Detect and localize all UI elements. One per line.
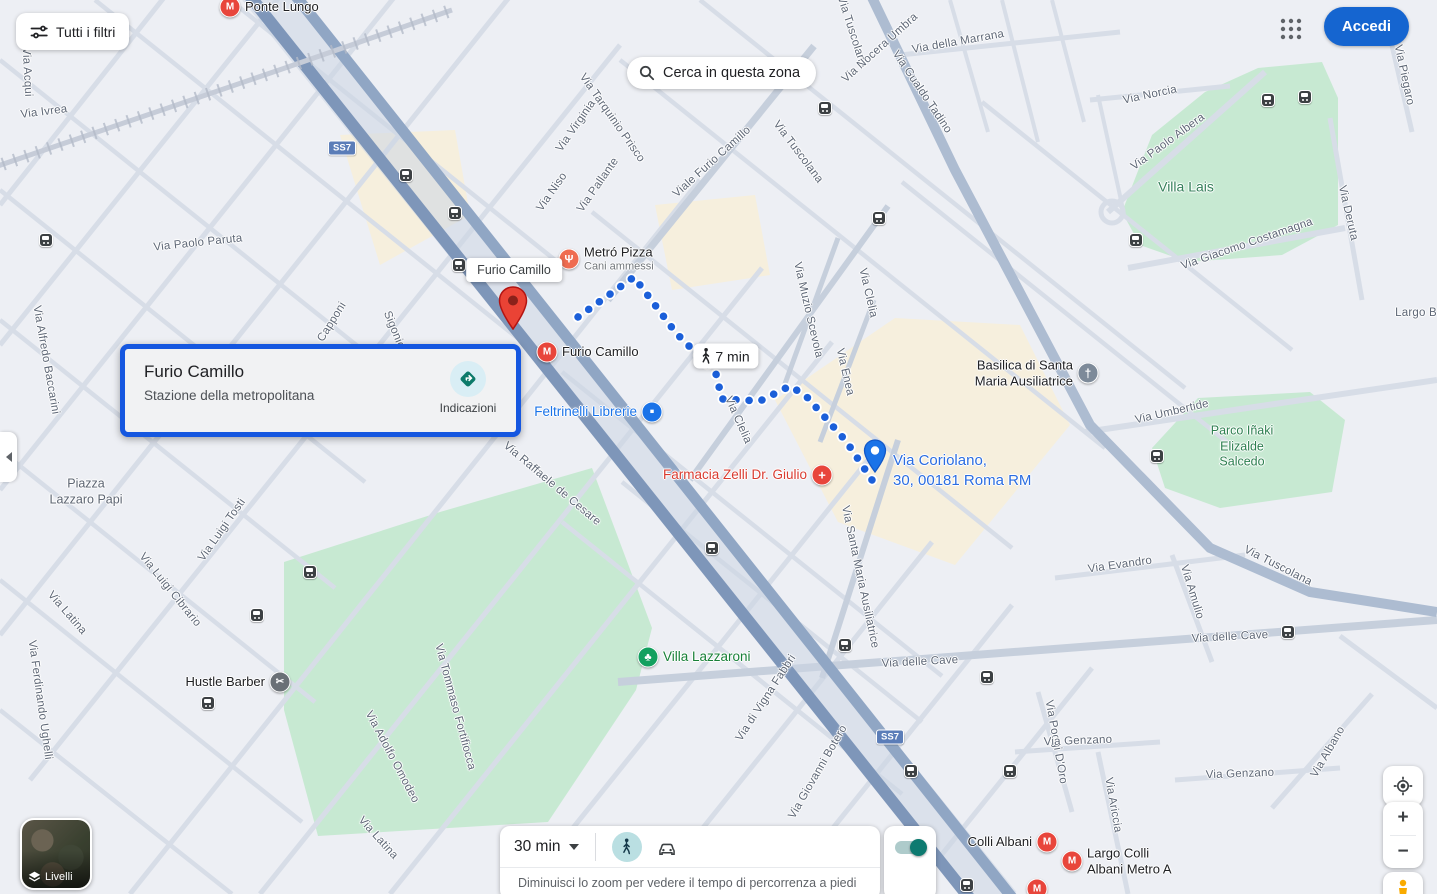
- place-info-card[interactable]: Furio Camillo Stazione della metropolita…: [120, 344, 521, 437]
- toggle-knob: [910, 839, 927, 856]
- pegman-button[interactable]: [1383, 872, 1423, 894]
- layers-button[interactable]: Livelli: [20, 818, 92, 890]
- filters-button[interactable]: Tutti i filtri: [16, 13, 129, 50]
- duration-dropdown[interactable]: 30 min: [514, 838, 579, 856]
- place-title: Furio Camillo: [144, 362, 244, 382]
- filters-button-label: Tutti i filtri: [56, 24, 115, 40]
- chevron-left-icon: [6, 452, 12, 462]
- layers-button-label: Livelli: [45, 871, 73, 883]
- walking-icon: [620, 838, 633, 855]
- panel-toggle-card: [884, 826, 936, 894]
- search-icon: [639, 65, 655, 81]
- search-area-label: Cerca in questa zona: [663, 65, 800, 81]
- side-panel-collapse-button[interactable]: [0, 432, 17, 482]
- driving-mode-button[interactable]: [652, 832, 682, 862]
- google-maps-app: Via AcquiVia IvreaVia Paolo ParutaVia Al…: [0, 0, 1437, 894]
- destination-pin[interactable]: [863, 439, 887, 478]
- zoom-controls: + −: [1383, 802, 1423, 868]
- my-location-icon: [1393, 776, 1413, 796]
- directions-button[interactable]: Indicazioni: [436, 361, 500, 415]
- zoom-in-button[interactable]: +: [1383, 802, 1423, 835]
- place-subtitle: Stazione della metropolitana: [144, 388, 314, 403]
- search-area-button[interactable]: Cerca in questa zona: [627, 57, 816, 89]
- zoom-out-button[interactable]: −: [1383, 836, 1423, 869]
- walking-icon: [699, 348, 712, 365]
- apps-grid-icon: [1278, 16, 1304, 42]
- destination-address-label: Via Coriolano, 30, 00181 Roma RM: [893, 451, 1031, 492]
- apps-grid-button[interactable]: [1278, 16, 1304, 42]
- directions-button-label: Indicazioni: [436, 401, 500, 415]
- zoom-hint-text: Diminuisci lo zoom per vedere il tempo d…: [500, 867, 880, 890]
- locate-button[interactable]: [1383, 766, 1423, 806]
- duration-dropdown-value: 30 min: [514, 838, 561, 856]
- travel-time-toggle[interactable]: [895, 841, 925, 854]
- tune-icon: [30, 24, 48, 40]
- travel-time-panel: 30 min Diminuisci lo zoom per vedere il …: [500, 826, 880, 894]
- panel-divider: [595, 833, 596, 861]
- pegman-icon: [1396, 879, 1410, 894]
- origin-pin[interactable]: [498, 286, 528, 335]
- directions-icon: [456, 367, 480, 391]
- walking-mode-button[interactable]: [612, 832, 642, 862]
- route-duration-text: 7 min: [715, 348, 749, 364]
- layers-icon: [28, 870, 41, 883]
- chevron-down-icon: [569, 844, 579, 850]
- car-icon: [656, 838, 678, 856]
- origin-tooltip: Furio Camillo: [466, 258, 562, 282]
- signin-button[interactable]: Accedi: [1324, 7, 1409, 46]
- route-duration-badge: 7 min: [693, 344, 758, 369]
- map-canvas[interactable]: [0, 0, 1437, 894]
